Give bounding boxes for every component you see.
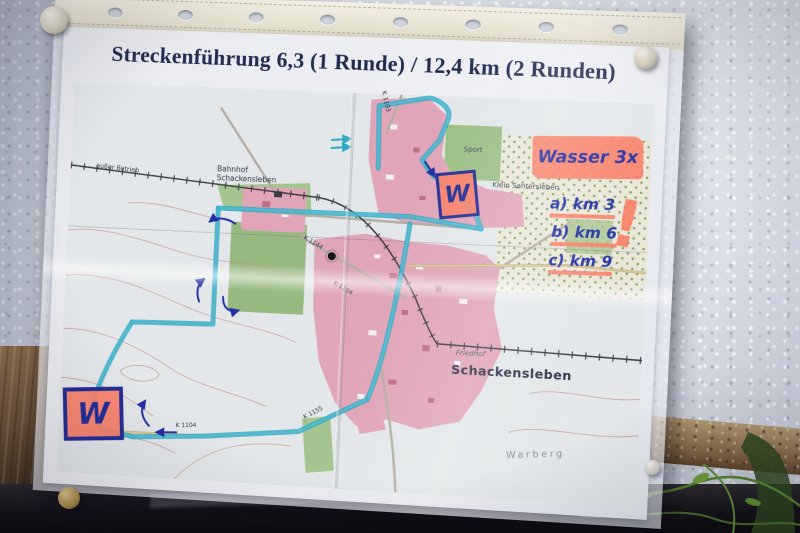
foliage-mass bbox=[741, 432, 795, 533]
punch-hole bbox=[392, 17, 408, 28]
route-arrows-teal bbox=[331, 138, 351, 149]
punch-hole bbox=[465, 19, 481, 30]
water-station-marker-southwest: W bbox=[63, 387, 124, 441]
plastic-sleeve: Streckenführung 6,3 (1 Runde) / 12,4 km … bbox=[33, 0, 686, 529]
pushpin-bottom-left bbox=[58, 487, 80, 509]
label-friedhof: Friedhof bbox=[456, 349, 486, 359]
water-point-item: a) km 3 bbox=[550, 194, 618, 219]
punch-hole bbox=[107, 7, 122, 17]
map-poster: Streckenführung 6,3 (1 Runde) / 12,4 km … bbox=[43, 27, 670, 520]
label-station: Bahnhof Schackensleben bbox=[216, 165, 276, 185]
label-sport: Sport bbox=[463, 145, 482, 154]
label-road-k1104: K 1104 bbox=[176, 422, 197, 429]
label-warberg: Warberg bbox=[506, 449, 565, 462]
water-station-marker-north: W bbox=[435, 170, 480, 220]
pushpin-bottom-right bbox=[645, 460, 660, 475]
route-map: Bahnhof Schackensleben Klein Santerslebe… bbox=[57, 82, 654, 507]
punch-hole bbox=[612, 24, 628, 35]
photo-scene: Streckenführung 6,3 (1 Runde) / 12,4 km … bbox=[0, 0, 800, 533]
punch-hole bbox=[249, 12, 264, 22]
water-note-highlight: Wasser 3x bbox=[532, 136, 643, 179]
pushpin-top-left bbox=[40, 6, 68, 34]
punch-hole bbox=[320, 14, 335, 24]
punch-hole bbox=[178, 10, 193, 20]
water-note-text: Wasser 3x bbox=[537, 147, 638, 168]
punch-hole bbox=[539, 22, 555, 33]
pushpin-top-right bbox=[634, 46, 657, 69]
